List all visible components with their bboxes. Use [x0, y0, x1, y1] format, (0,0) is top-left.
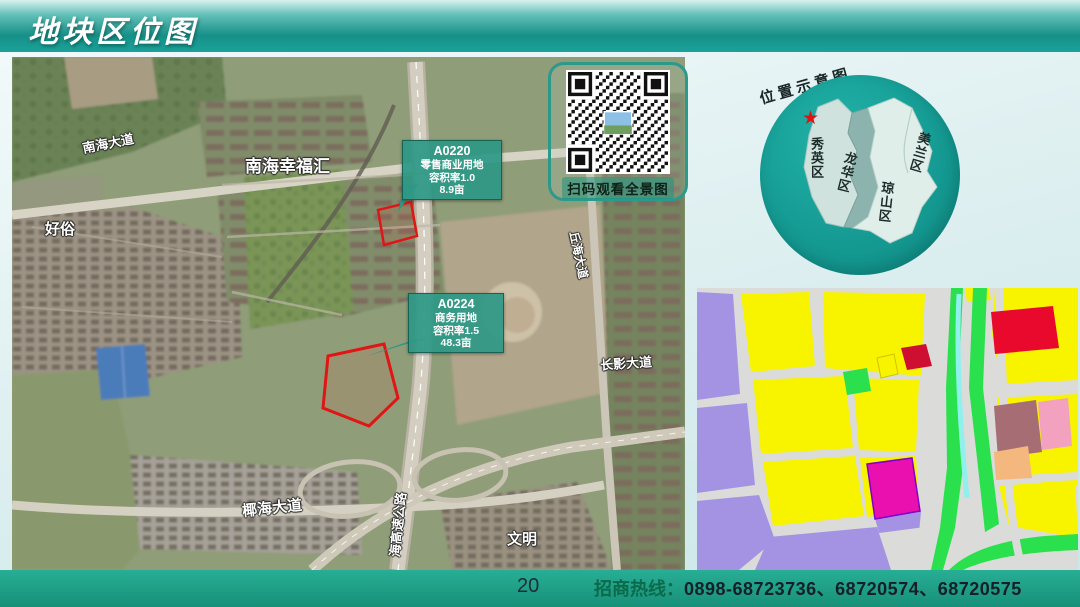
plot-location-star-icon: ★ [802, 109, 819, 128]
plot-land-use: 商务用地 [414, 312, 498, 325]
qr-code-icon [566, 70, 670, 174]
plot-id: A0220 [408, 144, 496, 159]
qr-caption: 扫码观看全景图 [562, 177, 674, 199]
plot-ratio: 容积率1.0 [408, 172, 496, 185]
plot-callout-a0224: A0224 商务用地 容积率1.5 48.3亩 [408, 293, 504, 353]
qr-center-thumbnail [604, 112, 632, 134]
plot-area: 48.3亩 [414, 337, 498, 350]
plot-area: 8.9亩 [408, 184, 496, 197]
header-bar: 地块区位图 [0, 0, 1080, 52]
page-number: 20 [517, 575, 539, 598]
road-label-changying-dadao: 长影大道 [599, 351, 652, 374]
hotline-numbers: 0898-68723736、68720574、68720575 [684, 579, 1022, 599]
plot-callout-a0220: A0220 零售商业用地 容积率1.0 8.9亩 [402, 140, 502, 200]
district-map-graphic [760, 75, 960, 275]
zoning-magenta-parcel [867, 458, 920, 519]
page-title: 地块区位图 [28, 7, 198, 51]
zoning-small-yellow-parcel [877, 354, 898, 378]
zoning-pink-parcel [1038, 398, 1072, 450]
district-circle: ★ 秀英区 龙华区 美兰区 琼山区 [760, 75, 960, 275]
location-diagram: 位置示意图 ★ 秀英区 龙华区 美兰区 琼山区 [700, 57, 1080, 287]
place-label-wenming: 文明 [507, 528, 537, 549]
zoning-orange-parcel [994, 446, 1032, 480]
qr-code-block: 扫码观看全景图 [548, 62, 688, 201]
zoning-map-graphic [697, 288, 1078, 570]
footer-bar: 20 招商热线：0898-68723736、68720574、68720575 [0, 570, 1080, 607]
hotline-label: 招商热线： [594, 579, 684, 599]
place-label-nanhai-xingfuhui: 南海幸福汇 [245, 152, 330, 177]
plot-ratio: 容积率1.5 [414, 325, 498, 338]
zoning-map [697, 288, 1078, 570]
zoning-red-parcel [991, 306, 1059, 354]
plot-land-use: 零售商业用地 [408, 159, 496, 172]
place-label-haosu: 好俗 [45, 218, 75, 239]
district-label-xiuying: 秀英区 [807, 137, 826, 179]
slide: 地块区位图 [0, 0, 1080, 607]
hotline: 招商热线：0898-68723736、68720574、68720575 [594, 575, 1022, 601]
plot-outline-a0220 [378, 202, 417, 245]
plot-id: A0224 [414, 297, 498, 312]
